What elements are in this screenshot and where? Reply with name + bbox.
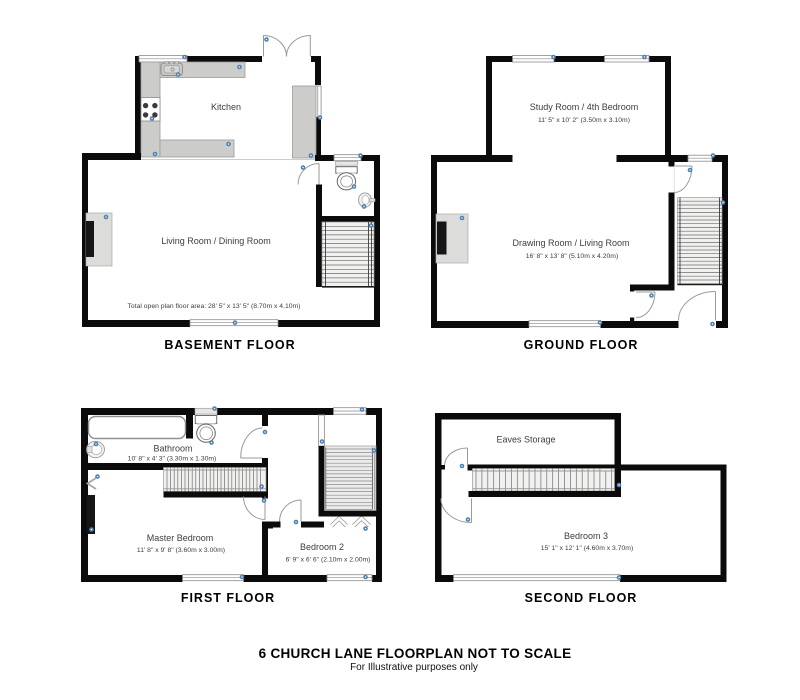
svg-text:Living Room / Dining Room: Living Room / Dining Room (161, 236, 271, 246)
svg-text:11' 5" x 10' 2" (3.50m x 3.10m: 11' 5" x 10' 2" (3.50m x 3.10m) (538, 117, 630, 124)
svg-text:Drawing Room / Living Room: Drawing Room / Living Room (512, 238, 629, 248)
svg-text:16' 8" x 13' 8" (5.10m x 4.20m: 16' 8" x 13' 8" (5.10m x 4.20m) (526, 253, 618, 260)
svg-text:Eaves Storage: Eaves Storage (496, 435, 555, 445)
svg-text:Bedroom 3: Bedroom 3 (564, 531, 608, 541)
svg-text:FIRST FLOOR: FIRST FLOOR (181, 591, 275, 605)
svg-text:Study Room / 4th Bedroom: Study Room / 4th Bedroom (530, 102, 639, 112)
svg-text:For Illustrative purposes only: For Illustrative purposes only (350, 662, 478, 673)
svg-text:10' 8" x 4' 3" (3.30m x 1.30m): 10' 8" x 4' 3" (3.30m x 1.30m) (128, 456, 217, 463)
svg-text:15' 1" x 12' 1" (4.60m x 3.70m: 15' 1" x 12' 1" (4.60m x 3.70m) (541, 545, 633, 552)
svg-text:GROUND FLOOR: GROUND FLOOR (524, 338, 639, 352)
svg-text:Master Bedroom: Master Bedroom (147, 533, 214, 543)
svg-text:6 CHURCH LANE FLOORPLAN NOT TO: 6 CHURCH LANE FLOORPLAN NOT TO SCALE (259, 646, 572, 661)
svg-text:Kitchen: Kitchen (211, 102, 241, 112)
svg-text:6' 9" x 6' 6" (2.10m x 2.00m): 6' 9" x 6' 6" (2.10m x 2.00m) (286, 557, 371, 564)
svg-text:BASEMENT FLOOR: BASEMENT FLOOR (164, 338, 295, 352)
svg-text:11' 8" x 9' 8" (3.60m x 3.00m): 11' 8" x 9' 8" (3.60m x 3.00m) (137, 547, 225, 554)
svg-text:Bedroom 2: Bedroom 2 (300, 542, 344, 552)
svg-text:Total open plan floor area: 28: Total open plan floor area: 28' 5" x 13'… (128, 303, 301, 310)
svg-text:Bathroom: Bathroom (153, 444, 192, 454)
svg-text:SECOND FLOOR: SECOND FLOOR (525, 591, 638, 605)
